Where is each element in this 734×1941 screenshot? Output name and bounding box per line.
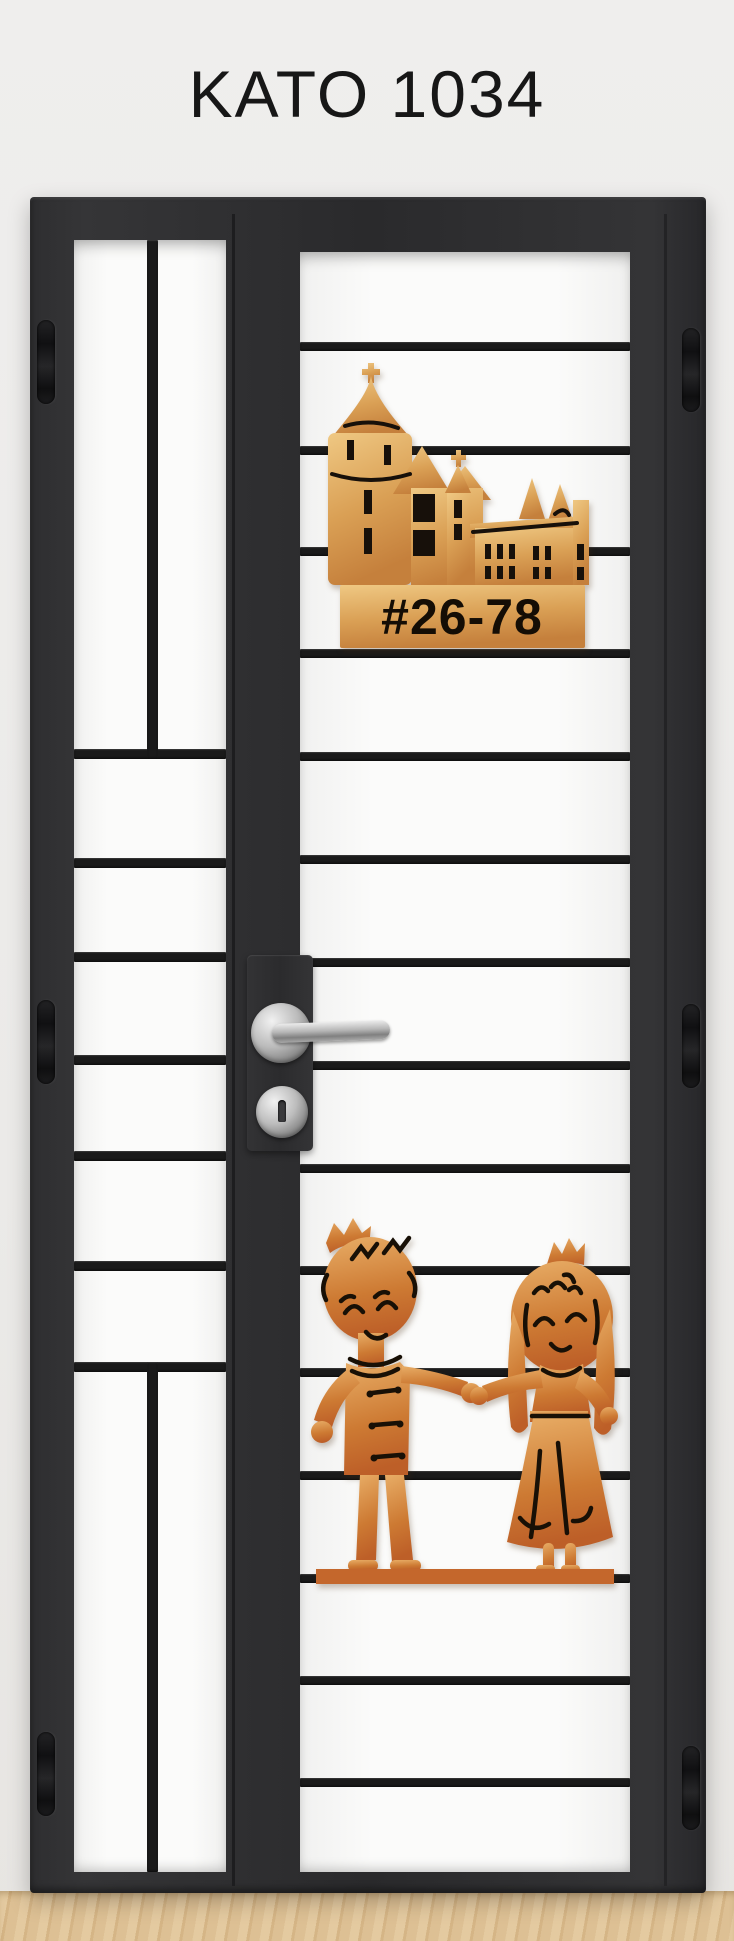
gate-bar-horizontal xyxy=(300,1061,630,1070)
gate-bar-horizontal xyxy=(300,958,630,967)
figures-base-bar xyxy=(316,1569,614,1584)
wood-floor xyxy=(0,1891,734,1941)
castle-emblem: #26-78 xyxy=(327,362,589,650)
gate-bar-horizontal xyxy=(300,649,630,658)
keyhole-icon xyxy=(278,1100,286,1122)
hinge-icon xyxy=(37,1732,55,1816)
product-photo: KATO 1034 xyxy=(0,0,734,1941)
gate-bar-horizontal xyxy=(300,1676,630,1685)
hinge-icon xyxy=(682,1746,700,1830)
hinge-icon xyxy=(682,1004,700,1088)
frame-seam xyxy=(664,214,667,1886)
gate-bar-horizontal xyxy=(300,1778,630,1787)
frame-seam xyxy=(232,214,235,1886)
gate-bar-horizontal xyxy=(300,752,630,761)
gate-bar-vertical xyxy=(147,1362,158,1872)
hinge-icon xyxy=(37,1000,55,1084)
product-title: KATO 1034 xyxy=(0,56,734,132)
gate-bar-horizontal xyxy=(74,1055,226,1065)
gate-bar-horizontal xyxy=(74,1151,226,1161)
gate-bar-horizontal xyxy=(300,342,630,351)
prince-princess-emblem xyxy=(300,1213,620,1591)
unit-number: #26-78 xyxy=(381,589,543,645)
gate-bar-horizontal xyxy=(300,1164,630,1173)
gate-bar-horizontal xyxy=(74,1261,226,1271)
gate-bar-horizontal xyxy=(300,855,630,864)
gate-bar-horizontal xyxy=(74,858,226,868)
prince-figure xyxy=(311,1218,481,1571)
hinge-icon xyxy=(682,328,700,412)
gate-bar-vertical xyxy=(147,240,158,759)
hinge-icon xyxy=(37,320,55,404)
gate-bar-horizontal xyxy=(74,952,226,962)
